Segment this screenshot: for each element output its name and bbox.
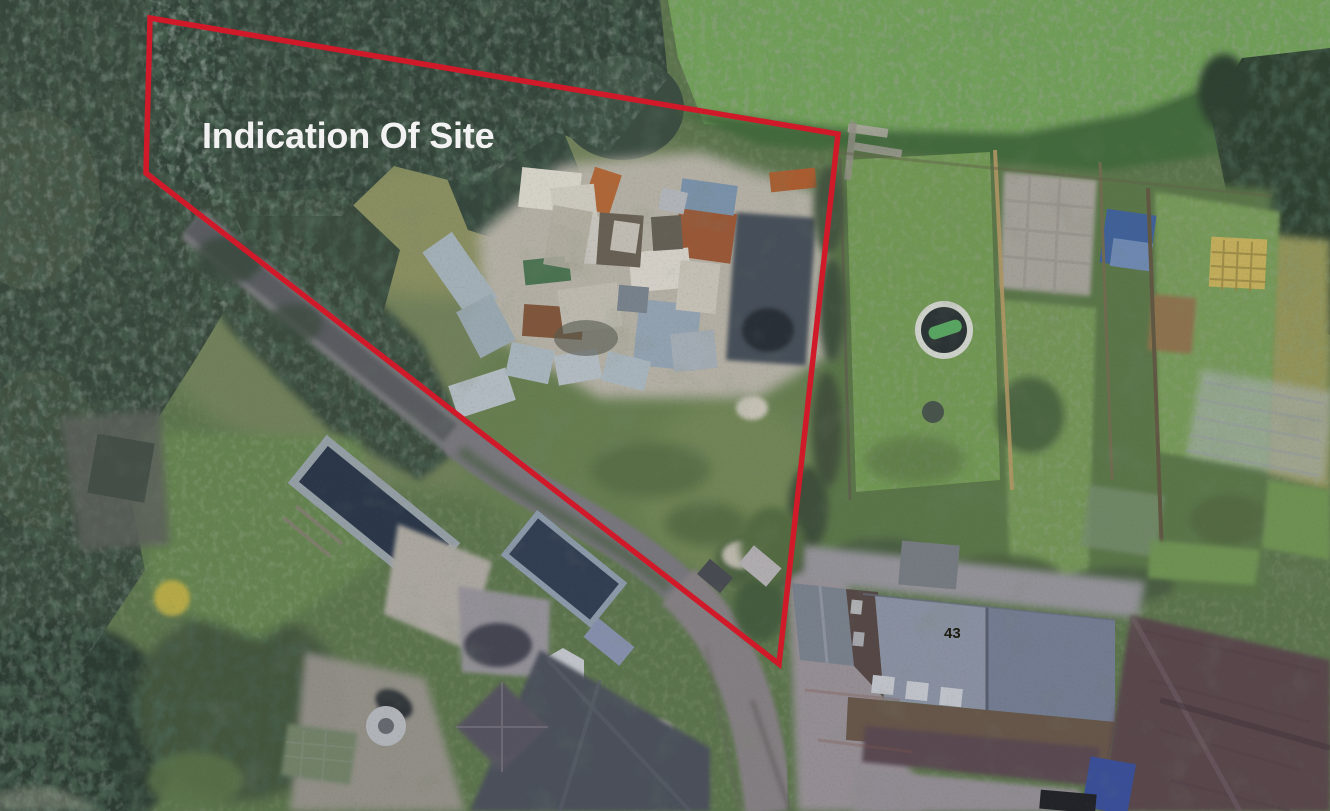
svg-text:Indication Of Site: Indication Of Site [202,115,494,156]
svg-text:43: 43 [944,625,961,642]
